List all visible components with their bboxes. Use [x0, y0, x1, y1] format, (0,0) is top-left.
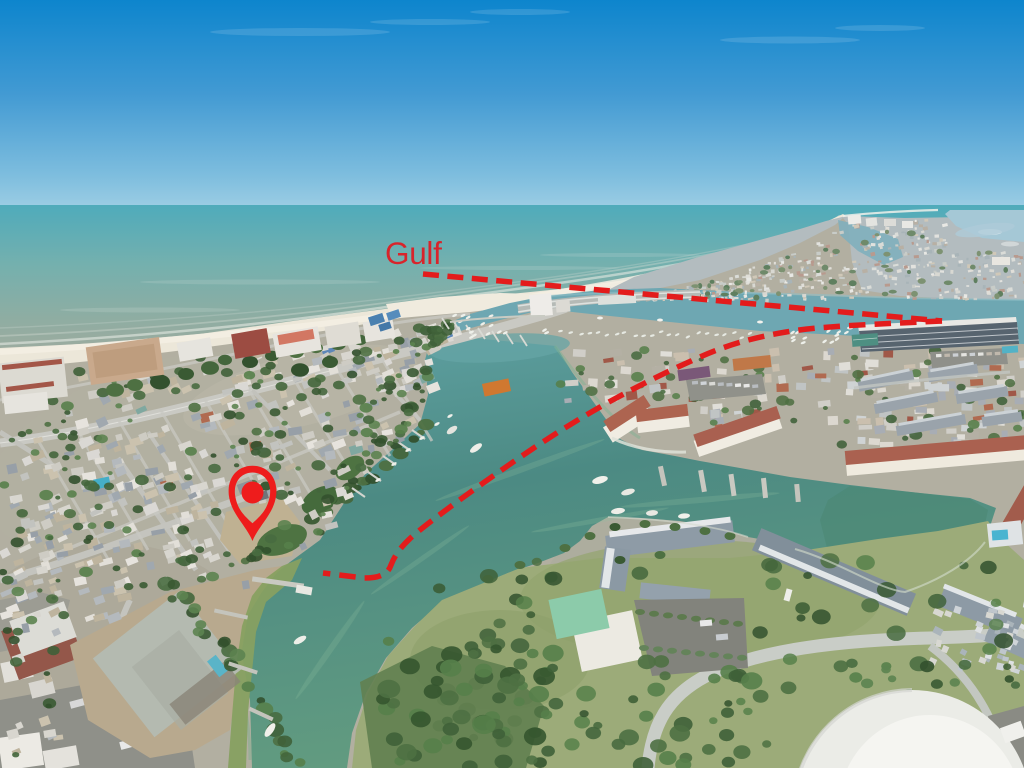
svg-text:Gulf: Gulf	[385, 235, 442, 271]
